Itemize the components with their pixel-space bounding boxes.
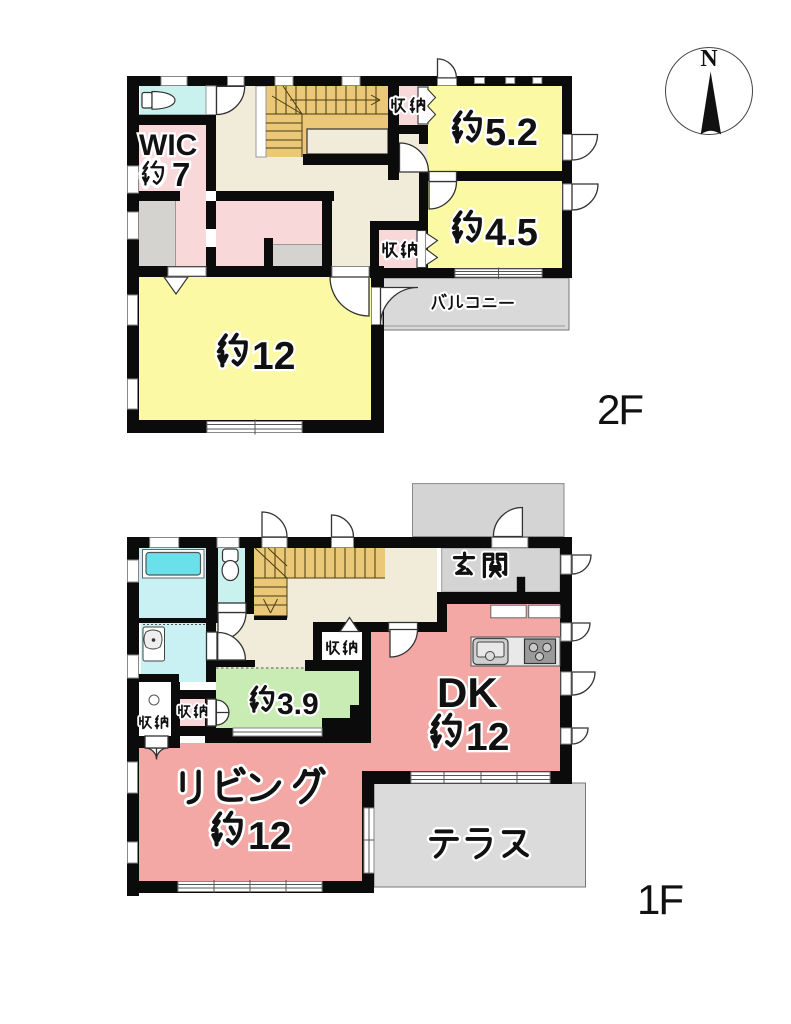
svg-text:12: 12 <box>466 716 509 759</box>
svg-text:3.9: 3.9 <box>277 688 319 721</box>
svg-text:5.2: 5.2 <box>485 112 538 154</box>
svg-text:1F: 1F <box>637 876 682 923</box>
svg-text:4.5: 4.5 <box>485 212 538 254</box>
svg-text:12: 12 <box>252 335 295 378</box>
svg-text:DK: DK <box>437 669 498 716</box>
svg-text:N: N <box>700 46 718 72</box>
svg-text:7: 7 <box>172 156 190 193</box>
svg-text:12: 12 <box>248 815 291 858</box>
svg-text:2F: 2F <box>597 386 642 433</box>
